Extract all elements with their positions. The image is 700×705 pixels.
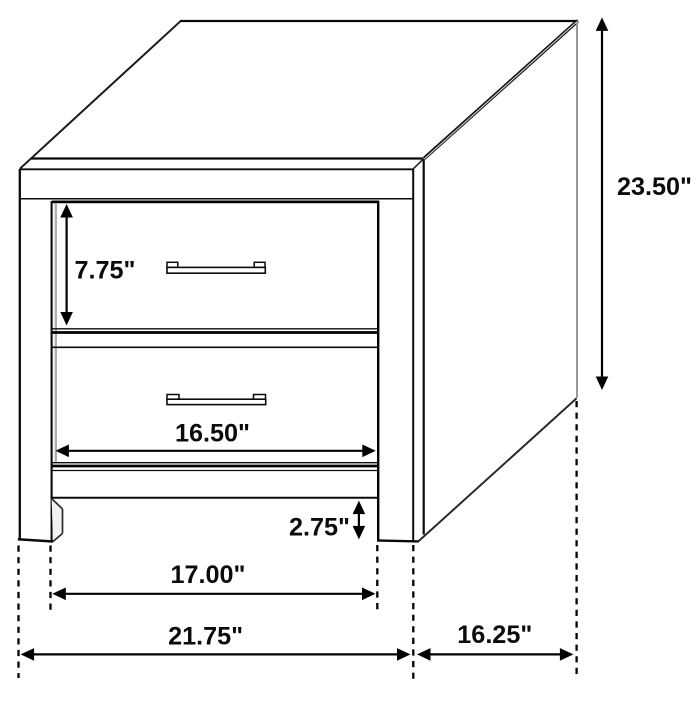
svg-text:23.50": 23.50" xyxy=(617,173,692,201)
svg-text:16.25": 16.25" xyxy=(457,621,532,649)
svg-text:7.75": 7.75" xyxy=(75,257,136,285)
svg-text:2.75": 2.75" xyxy=(289,514,350,542)
svg-text:21.75": 21.75" xyxy=(168,622,243,650)
svg-text:16.50": 16.50" xyxy=(175,419,250,447)
svg-text:17.00": 17.00" xyxy=(171,561,246,589)
